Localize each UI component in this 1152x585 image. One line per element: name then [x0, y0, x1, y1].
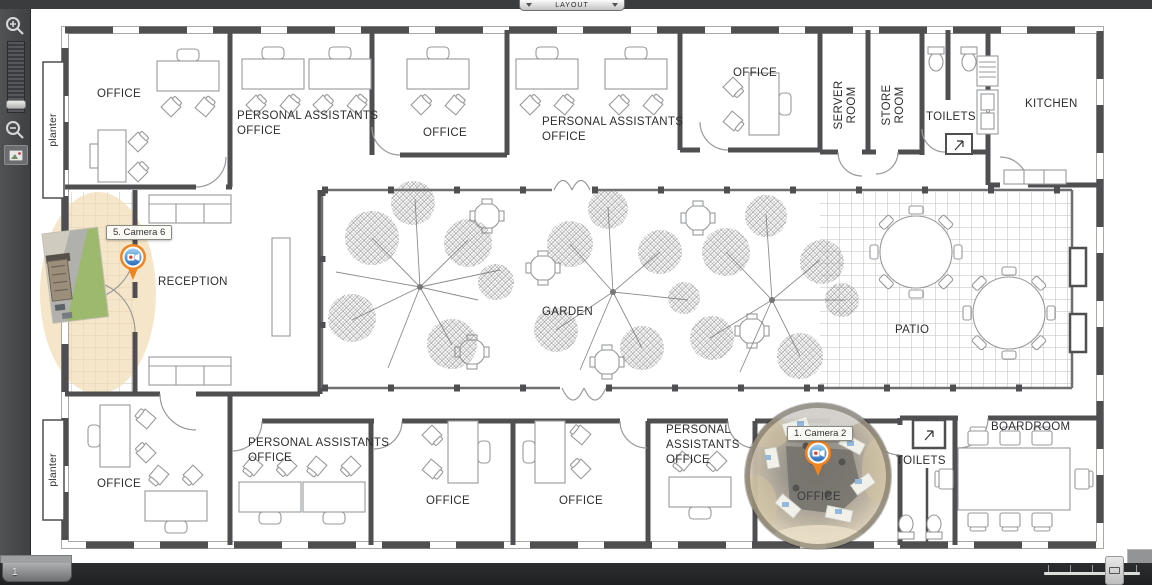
layout-selector-label: LAYOUT: [555, 2, 589, 9]
room-label-office-bottom-1: OFFICE: [97, 477, 141, 492]
room-label-garden: GARDEN: [542, 305, 593, 320]
room-label-toilets-top: TOILETS: [926, 110, 976, 125]
room-label-office-top-3: OFFICE: [733, 66, 777, 81]
room-label-office-top-2: OFFICE: [423, 126, 467, 141]
room-label-planter-bottom: planter: [47, 453, 59, 487]
map-scale-slider[interactable]: [1044, 563, 1144, 585]
room-label-boardroom: BOARDROOM: [991, 420, 1070, 435]
room-label-pa-bottom-2: PERSONAL ASSISTANTS OFFICE: [666, 423, 740, 468]
slider-track[interactable]: [1044, 572, 1140, 575]
page-tab-shoulder: [0, 555, 72, 563]
zoom-out-icon[interactable]: [4, 119, 26, 141]
zoom-slider[interactable]: [7, 41, 25, 113]
chevron-down-icon-left[interactable]: [526, 3, 532, 7]
room-label-toilets-bottom: TOILETS: [896, 454, 946, 469]
room-label-planter-top: planter: [47, 113, 59, 147]
room-label-office-bottom-4: OFFICE: [797, 490, 841, 505]
room-label-pa-top-1: PERSONAL ASSISTANTS OFFICE: [237, 109, 378, 139]
chevron-down-icon-right[interactable]: [612, 3, 618, 7]
page-tab-label: 1: [12, 567, 18, 578]
zoom-in-icon[interactable]: [4, 15, 26, 37]
room-label-kitchen: KITCHEN: [1025, 97, 1078, 112]
page-tab-1[interactable]: 1: [2, 563, 72, 582]
room-label-reception: RECEPTION: [158, 275, 228, 290]
room-label-store-room: STORE ROOM: [881, 85, 907, 126]
camera-2-pin[interactable]: [801, 437, 835, 477]
scrollbar-corner: [1127, 549, 1152, 563]
room-label-server-room: SERVER ROOM: [833, 81, 859, 130]
slider-thumb[interactable]: [1105, 556, 1124, 585]
room-label-office-bottom-2: OFFICE: [426, 494, 470, 509]
layout-selector[interactable]: LAYOUT: [519, 0, 625, 11]
camera-2-tooltip: 1. Camera 2: [787, 426, 853, 441]
bottom-bar: [0, 563, 1152, 585]
room-label-pa-top-2: PERSONAL ASSISTANTS OFFICE: [542, 115, 683, 145]
zoom-slider-thumb[interactable]: [6, 100, 26, 109]
zoom-toolbar: [0, 9, 31, 563]
app-window: OFFICE PERSONAL ASSISTANTS OFFICE OFFICE…: [0, 0, 1152, 585]
camera-6-pin[interactable]: [116, 241, 150, 281]
camera-6-tooltip: 5. Camera 6: [106, 225, 172, 240]
room-label-pa-bottom-1: PERSONAL ASSISTANTS OFFICE: [248, 436, 389, 466]
image-overlay-button[interactable]: [4, 145, 28, 165]
room-label-patio: PATIO: [895, 323, 929, 338]
room-label-office-top-1: OFFICE: [97, 87, 141, 102]
room-label-office-bottom-3: OFFICE: [559, 494, 603, 509]
